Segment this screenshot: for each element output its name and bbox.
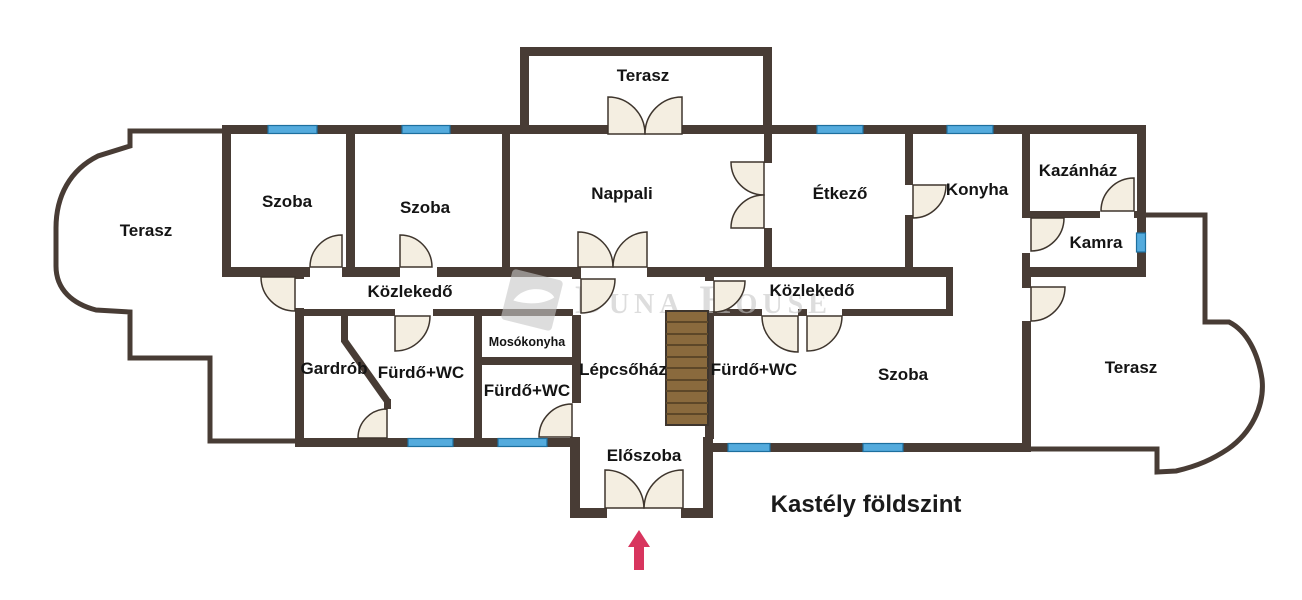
wall-segment bbox=[384, 399, 391, 409]
room-label-eloszoba: Előszoba bbox=[607, 446, 682, 465]
watermark-logo-icon bbox=[500, 268, 563, 331]
door-arc bbox=[731, 162, 764, 195]
room-label-mosokonyha: Mosókonyha bbox=[489, 335, 566, 349]
wall-segment bbox=[474, 357, 581, 365]
door-arc bbox=[913, 185, 946, 218]
door-arc bbox=[539, 404, 572, 437]
wall-segment bbox=[570, 437, 580, 518]
door-arc bbox=[261, 277, 295, 311]
entrance-arrow-icon bbox=[628, 530, 650, 570]
room-label-gardrob: Gardrób bbox=[300, 359, 367, 378]
wall-segment bbox=[946, 277, 953, 316]
staircase bbox=[666, 311, 708, 425]
wall-segment bbox=[703, 437, 713, 518]
wall-segment bbox=[1022, 267, 1146, 277]
wall-segment bbox=[520, 47, 529, 134]
room-label-lepcsohaz: Lépcsőház bbox=[579, 360, 667, 379]
room-label-terasz-right: Terasz bbox=[1105, 358, 1158, 377]
wall-segment bbox=[572, 315, 581, 403]
door-arc bbox=[608, 97, 645, 134]
room-label-terasz-left: Terasz bbox=[120, 221, 173, 240]
room-label-kamra: Kamra bbox=[1070, 233, 1123, 252]
wall-segment bbox=[681, 508, 713, 518]
door-arc bbox=[613, 232, 647, 267]
window-marker bbox=[408, 439, 453, 447]
entrance-door-arc bbox=[605, 470, 644, 508]
entrance-door-arc bbox=[644, 470, 683, 508]
room-label-szoba-3: Szoba bbox=[878, 365, 929, 384]
room-label-szoba-2: Szoba bbox=[400, 198, 451, 217]
door-arc bbox=[1031, 287, 1065, 321]
floorplan-canvas: Duna House bbox=[0, 0, 1302, 600]
window-marker bbox=[947, 126, 993, 134]
wall-segment bbox=[1022, 211, 1100, 218]
room-label-kozlekedo-left: Közlekedő bbox=[367, 282, 452, 301]
door-arc bbox=[310, 235, 342, 267]
window-marker bbox=[1137, 233, 1146, 252]
wall-segment bbox=[682, 125, 1146, 134]
wall-segment bbox=[222, 125, 231, 277]
room-label-furdo-wc-2: Fürdő+WC bbox=[484, 381, 570, 400]
wall-segment bbox=[304, 309, 395, 316]
room-label-szoba-1: Szoba bbox=[262, 192, 313, 211]
window-marker bbox=[268, 126, 317, 134]
wall-segment bbox=[1137, 125, 1146, 277]
window-marker bbox=[498, 439, 547, 447]
room-label-furdo-wc-3: Fürdő+WC bbox=[711, 360, 797, 379]
wall-segment bbox=[1022, 125, 1030, 218]
wall-segment bbox=[520, 47, 772, 56]
window-marker bbox=[863, 444, 903, 452]
door-arc bbox=[400, 235, 432, 267]
wall-segment bbox=[1022, 267, 1031, 288]
door-arc bbox=[578, 232, 613, 267]
door-arc bbox=[807, 316, 842, 351]
room-label-furdo-wc-1: Fürdő+WC bbox=[378, 363, 464, 382]
room-label-kozlekedo-right: Közlekedő bbox=[769, 281, 854, 300]
window-marker bbox=[728, 444, 770, 452]
left-terrace-outline bbox=[56, 131, 297, 441]
room-label-nappali: Nappali bbox=[591, 184, 652, 203]
wall-segment bbox=[1134, 211, 1146, 218]
wall-segment bbox=[502, 129, 510, 271]
door-arc bbox=[645, 97, 682, 134]
wall-segment bbox=[905, 215, 913, 269]
door-arc bbox=[762, 316, 798, 352]
wall-segment bbox=[763, 47, 772, 134]
door-arc bbox=[1101, 178, 1134, 211]
plan-title: Kastély földszint bbox=[771, 491, 962, 518]
wall-segment bbox=[570, 508, 607, 518]
door-arc bbox=[395, 316, 430, 351]
window-marker bbox=[402, 126, 450, 134]
room-label-terasz-top: Terasz bbox=[617, 66, 670, 85]
right-terrace-outline bbox=[1031, 215, 1262, 472]
wall-segment bbox=[474, 309, 482, 447]
floorplan-svg: Duna House bbox=[0, 0, 1302, 600]
wall-segment bbox=[764, 228, 772, 269]
room-label-etkezo: Étkező bbox=[813, 184, 868, 203]
wall-segment bbox=[842, 309, 950, 316]
wall-segment bbox=[905, 125, 913, 185]
window-marker bbox=[817, 126, 863, 134]
wall-segment bbox=[295, 267, 304, 279]
wall-segment bbox=[1022, 321, 1031, 452]
door-arc bbox=[358, 409, 387, 438]
room-label-konyha: Konyha bbox=[946, 180, 1009, 199]
door-arc bbox=[1031, 218, 1064, 251]
room-label-kazanhaz: Kazánház bbox=[1039, 161, 1117, 180]
wall-segment bbox=[346, 129, 355, 271]
door-arc bbox=[731, 195, 764, 228]
wall-segment bbox=[341, 309, 348, 342]
